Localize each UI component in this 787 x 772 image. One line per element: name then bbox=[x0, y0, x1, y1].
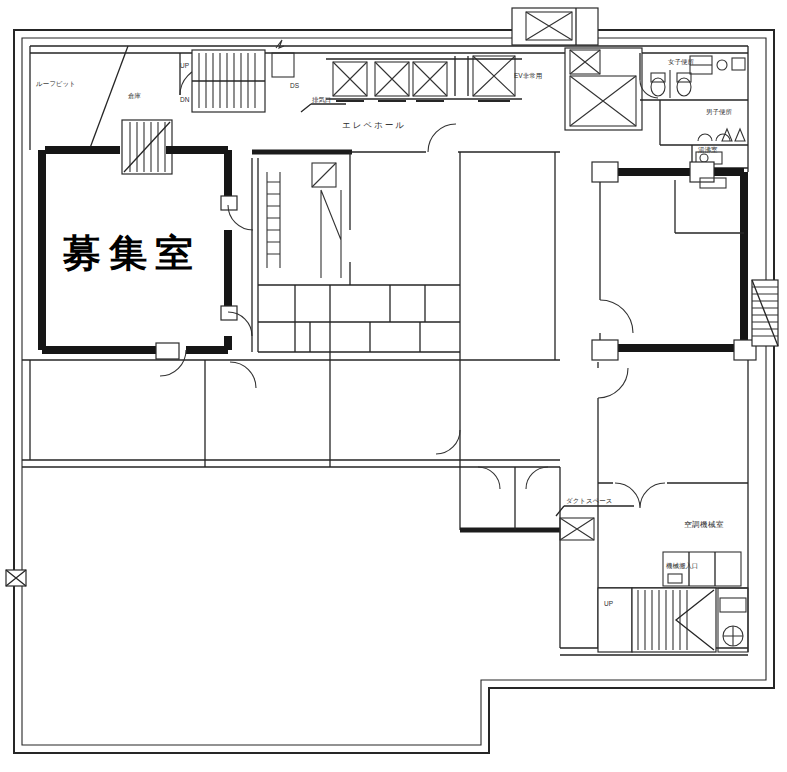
service-room bbox=[718, 588, 748, 652]
exhaust-label: 排気口 bbox=[312, 96, 332, 104]
machine-entrance-label: 機械搬入口 bbox=[666, 562, 699, 570]
elevator-bank bbox=[326, 56, 522, 101]
middle-rooms bbox=[22, 352, 748, 508]
ac-machine-room-label: 空調機械室 bbox=[684, 520, 724, 529]
hot-water-room-label: 湯沸室 bbox=[698, 146, 718, 154]
main-room-label: 募集室 bbox=[62, 232, 201, 274]
center-cluster bbox=[252, 124, 560, 360]
floor-plan-drawing: ルーフピット 倉庫 UP DN DS 排気口 EV非 bbox=[0, 0, 787, 772]
stair-up-label: UP bbox=[180, 62, 189, 69]
right-room bbox=[592, 162, 756, 360]
floor-plan-scan: ルーフピット 倉庫 UP DN DS 排気口 EV非 bbox=[0, 0, 787, 772]
south-staircase: UP bbox=[598, 588, 716, 652]
joint-mark-icon bbox=[6, 570, 26, 586]
duct-space-label: ダクトスペース bbox=[566, 497, 612, 504]
rooftop-shaft bbox=[512, 8, 598, 45]
roof-pit-label: ルーフピット bbox=[36, 80, 76, 87]
toilet-block: 女子便所 男子便所 湯沸室 bbox=[640, 53, 748, 168]
storage-label: 倉庫 bbox=[128, 92, 142, 100]
mens-toilet-label: 男子便所 bbox=[706, 108, 733, 116]
elevator-hall-label: エレベホール bbox=[342, 120, 406, 130]
machine-room-block: ダクトスペース 空調機械室 機械搬入口 UP bbox=[556, 483, 748, 652]
main-room: 募集室 bbox=[42, 150, 253, 376]
emergency-elevator: EV非常用 bbox=[514, 48, 642, 130]
bottom-center-rooms bbox=[460, 467, 560, 530]
emergency-elevator-label: EV非常用 bbox=[514, 72, 542, 80]
fire-escape bbox=[752, 280, 778, 346]
duct-riser: DS 排気口 bbox=[272, 40, 346, 112]
interior-stair bbox=[122, 120, 172, 174]
ds-label: DS bbox=[290, 82, 300, 89]
stair-down-label: DN bbox=[180, 96, 190, 103]
womens-toilet-label: 女子便所 bbox=[668, 58, 695, 66]
stair-up-label-2: UP bbox=[604, 600, 613, 607]
north-staircase: UP DN bbox=[180, 50, 265, 112]
